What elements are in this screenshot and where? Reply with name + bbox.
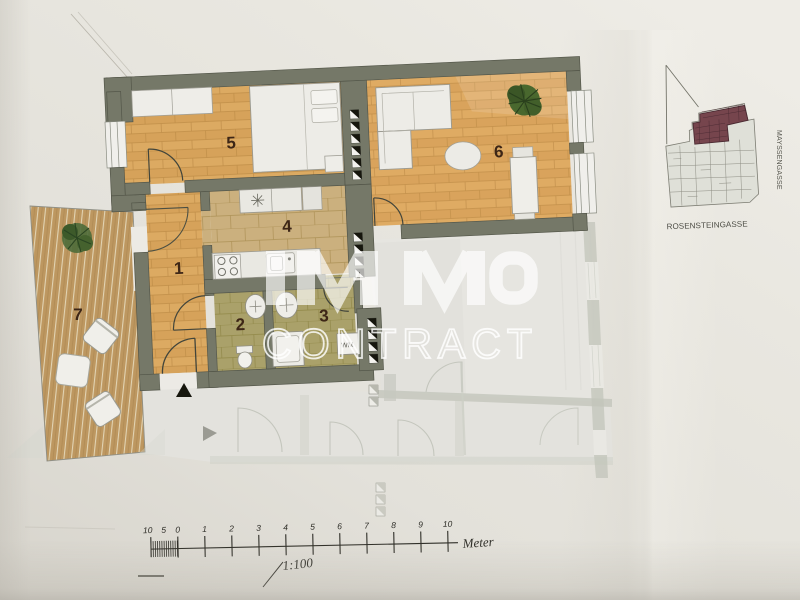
svg-text:2: 2 bbox=[235, 315, 245, 334]
svg-text:4: 4 bbox=[282, 217, 293, 236]
svg-text:5: 5 bbox=[161, 525, 166, 535]
svg-text:MAYSSENGASSE: MAYSSENGASSE bbox=[775, 130, 782, 190]
svg-text:1: 1 bbox=[202, 524, 207, 534]
svg-text:7: 7 bbox=[73, 305, 82, 324]
svg-text:5: 5 bbox=[310, 522, 315, 532]
svg-text:10: 10 bbox=[143, 525, 153, 535]
svg-text:0: 0 bbox=[175, 525, 180, 535]
svg-text:9: 9 bbox=[418, 519, 423, 529]
svg-text:CONTRACT: CONTRACT bbox=[262, 320, 538, 367]
svg-text:2: 2 bbox=[228, 523, 234, 533]
svg-text:7: 7 bbox=[364, 521, 369, 531]
svg-text:3: 3 bbox=[256, 523, 261, 533]
svg-text:5: 5 bbox=[226, 133, 236, 152]
svg-text:10: 10 bbox=[443, 519, 453, 529]
svg-text:4: 4 bbox=[283, 522, 288, 532]
svg-text:6: 6 bbox=[494, 142, 504, 161]
svg-text:8: 8 bbox=[391, 520, 396, 530]
svg-text:1: 1 bbox=[174, 259, 184, 278]
svg-text:6: 6 bbox=[337, 521, 342, 531]
